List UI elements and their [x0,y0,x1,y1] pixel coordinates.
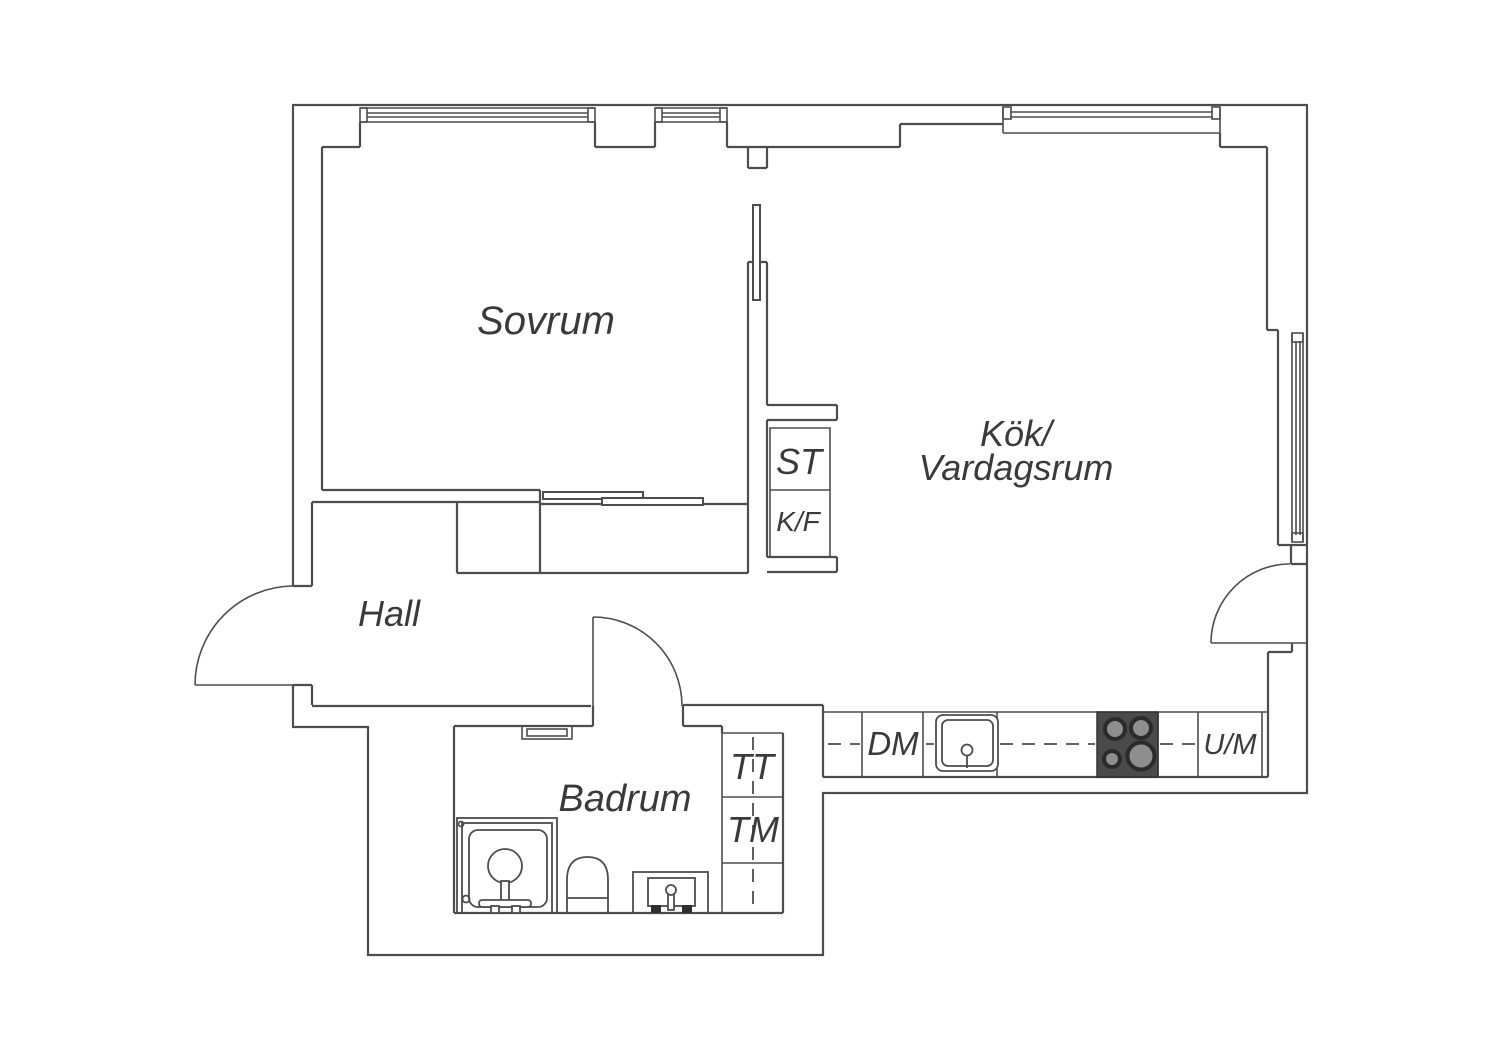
label-tumble-dryer: TT [730,746,777,787]
bedroom-window-large [360,108,595,122]
counter-cell-dividers [862,712,1262,777]
sliding-door-leaf [753,205,760,300]
entrance-door [195,586,312,685]
toilet [567,857,608,913]
label-cleaning-closet: ST [776,441,825,482]
label-bathroom: Badrum [558,778,691,820]
bedroom-window-small [655,108,727,122]
shower-head [488,849,522,883]
bathroom-door [593,617,682,706]
bathroom-sink [633,872,708,913]
bedroom-kitchen-wall [748,147,767,573]
balcony-door [1211,564,1307,643]
label-kitchen-living-2: Vardagsrum [919,447,1114,488]
bathroom-door-swing-arc [593,617,682,706]
label-bedroom: Sovrum [477,299,615,343]
label-washing-machine: TM [727,809,779,850]
entrance-door-swing-arc [195,586,293,685]
tall-cabinets [767,405,837,572]
balcony-window [1292,333,1303,542]
floor-plan: Sovrum Kök/ Vardagsrum Hall Badrum ST K/… [0,0,1500,1060]
label-oven-microwave: U/M [1203,729,1257,761]
shower [457,818,557,913]
label-dishwasher: DM [867,725,919,762]
balcony-door-swing-arc [1211,564,1290,643]
label-fridge-freezer: K/F [776,506,821,537]
label-hall: Hall [358,593,421,634]
kitchen-sink [936,715,998,771]
kitchen-window [1003,107,1220,133]
bathroom-radiator [522,726,572,739]
stove [1097,712,1158,777]
